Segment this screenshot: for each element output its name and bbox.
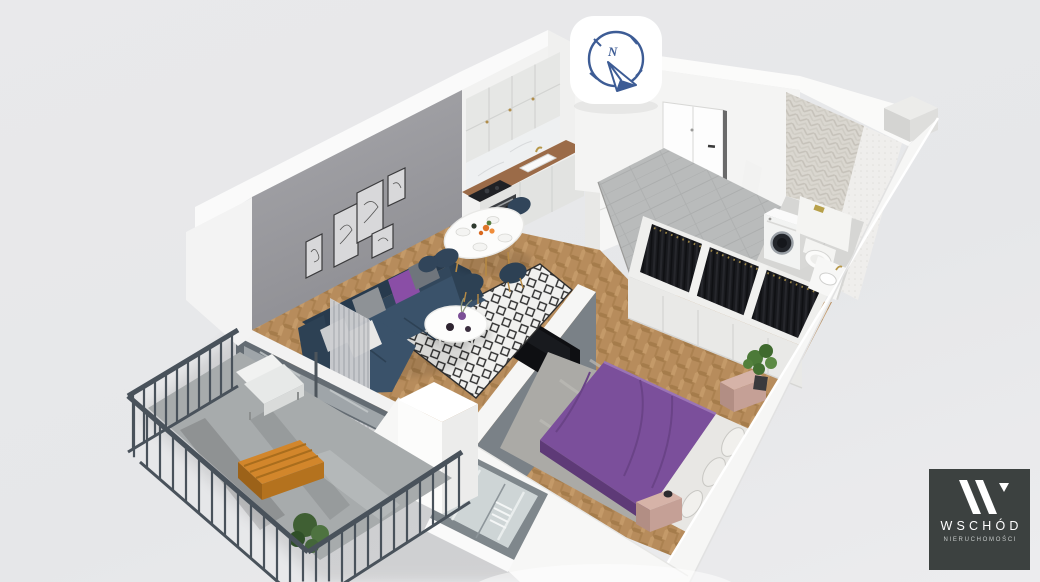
bottle — [471, 223, 476, 228]
compass-button[interactable]: N — [570, 16, 662, 114]
vase-purple — [458, 312, 466, 320]
door-seam — [723, 110, 727, 181]
apartment-3d-scene: N — [0, 0, 1040, 582]
logo-subtitle-text: NIERUCHOMOŚCI — [942, 537, 1017, 543]
floorplan-render: N WSCHÓD NIERUCHOMOŚCI — [0, 0, 1040, 582]
logo-w-mark — [949, 480, 1011, 514]
agency-logo: WSCHÓD NIERUCHOMOŚCI — [929, 469, 1030, 570]
table-lamp — [664, 491, 673, 498]
logo-brand-text: WSCHÓD — [936, 519, 1022, 533]
compass-north-label: N — [607, 44, 618, 59]
flowers-orange — [483, 225, 489, 231]
coffee-table-top — [425, 306, 487, 342]
door-peephole — [691, 129, 694, 132]
